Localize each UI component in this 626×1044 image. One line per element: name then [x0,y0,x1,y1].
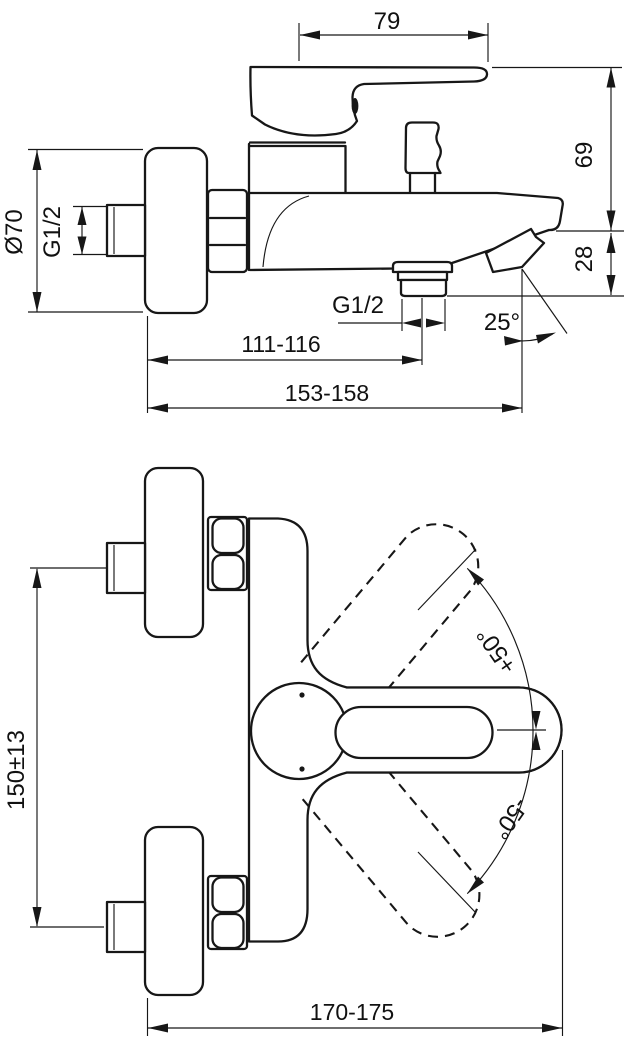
front-hose-outlet [393,262,452,296]
plan-handle-slot [336,707,493,758]
front-shower-outlet [486,229,544,272]
dim-outlet-angle: 25° [484,309,520,336]
front-lever-handle [250,67,487,135]
dim-swing-down: -50° [486,792,534,844]
dim-upper-height: 69 [571,142,598,169]
front-inlet-nipple [107,205,145,256]
dim-wall-to-outlet: 111-116 [241,331,320,357]
front-view: 79 69 28 Ø70 [1,8,624,413]
dim-spout-height: 28 [571,246,598,273]
dim-handle-length: 79 [374,8,401,35]
plan-upper-nipple [107,543,145,593]
front-diverter-knob [406,123,441,193]
dim-inlet-thread: G1/2 [39,206,66,258]
front-wall-escutcheon [145,148,207,313]
front-hex-nut [208,190,247,272]
dim-hose-outlet-thread: G1/2 [332,292,384,319]
plan-upper-escutcheon [145,468,203,637]
dim-overall-width: 170-175 [310,999,394,1025]
plan-lower-nipple [107,902,145,952]
plan-lower-escutcheon [145,827,203,995]
plan-upper-hex-nut [208,517,247,590]
dim-swing-up: +50° [471,622,522,679]
handle-pivot-pin [352,98,359,114]
plan-view: +50° -50° 150±13 170-175 [3,468,563,1036]
plan-lower-hex-nut [208,876,247,949]
mixer-tap-dimension-drawing: 79 69 28 Ø70 [0,0,626,1044]
dim-overall-depth: 153-158 [285,380,369,406]
dim-connection-centres: 150±13 [3,730,30,810]
dim-flange-diameter: Ø70 [1,209,28,254]
technical-drawing-page: 79 69 28 Ø70 [0,0,626,1044]
